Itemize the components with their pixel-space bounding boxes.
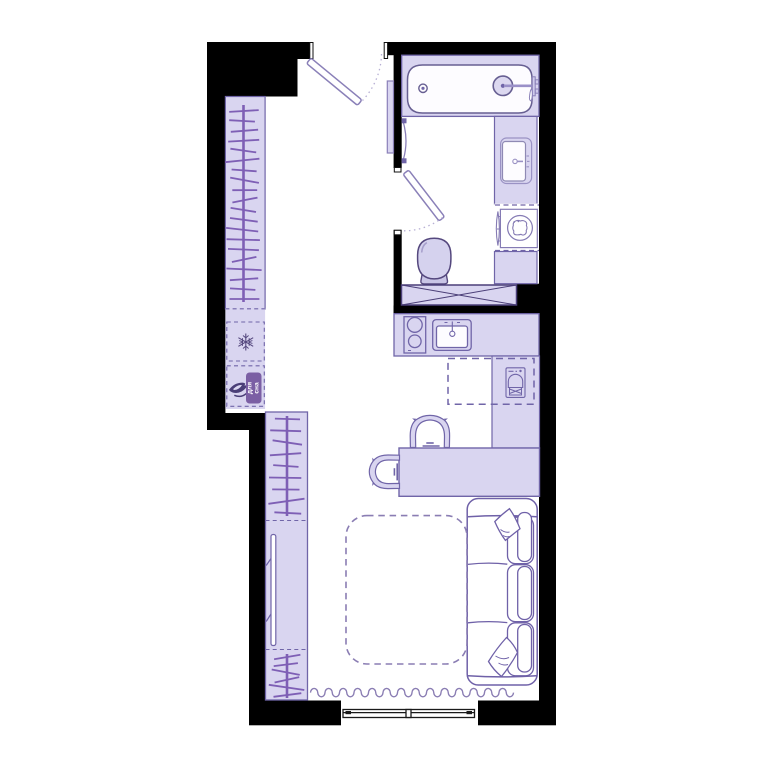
svg-text:сна: сна — [254, 382, 261, 394]
svg-text:для: для — [247, 382, 254, 394]
